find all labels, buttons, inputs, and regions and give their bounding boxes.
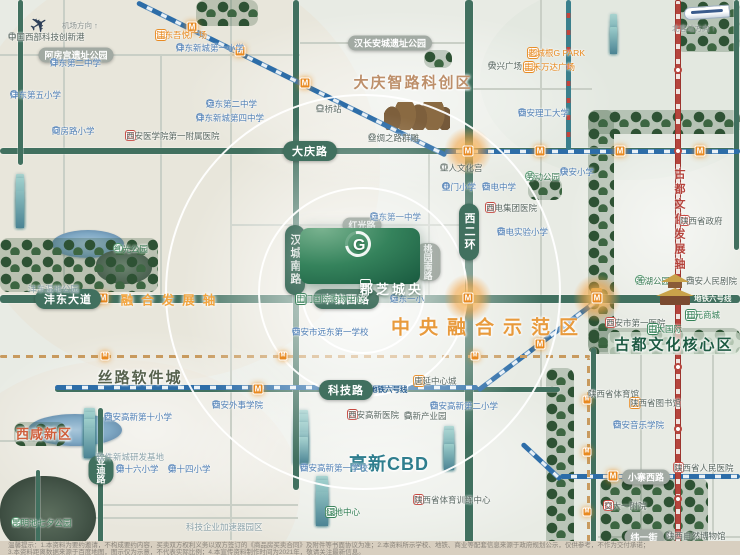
minor-road [470, 88, 592, 90]
road-pill: 西二环 [459, 204, 479, 261]
metro-station-icon: M [463, 146, 474, 157]
poi-label-text: 陕西省体育训练中心 [414, 495, 491, 506]
metro-station-icon: M [279, 352, 288, 361]
metro-station-icon: M [463, 293, 474, 304]
poi-label-text: 科技企业加速器园区 [186, 522, 263, 533]
poi-label-text: 开元商城 [686, 310, 720, 321]
poi-label-text: 第十六小学 [116, 464, 159, 475]
minor-road [100, 504, 298, 506]
major-road [18, 0, 23, 165]
poi-label-text: 丝绸之路群雕 [368, 133, 419, 144]
metro-station-icon: M [253, 384, 264, 395]
poi-label-text: 中大国际 [648, 324, 682, 335]
poi-label-text: 沣东吾悦广场 [156, 30, 207, 41]
metro-station-icon: M [592, 293, 603, 304]
minor-road [712, 352, 714, 538]
buildings-illustration [16, 174, 66, 228]
metro-station-icon: M [583, 448, 592, 457]
rail-station-icon [674, 363, 682, 371]
metro-line [587, 358, 590, 555]
poi-label-text: 软件新城研发基地 [96, 452, 164, 463]
metro-station-icon: M [535, 146, 546, 157]
poi-label-text: 西电集团医院 [486, 203, 537, 214]
poi-label-text: 沣东新城第四中学 [196, 113, 264, 124]
railstation-direction-label: 北客站方向 ↑ [672, 23, 715, 34]
minor-road [160, 55, 162, 296]
airport-direction-label: 机场方向 ↑ [62, 20, 98, 31]
poi-label-text: 沣东第二中学 [50, 58, 101, 69]
road-pill: 小寨西路 [622, 470, 670, 485]
project-name-text: 郡芝城央 [360, 279, 424, 298]
poi-label-text: 西安人民剧院 [686, 276, 737, 287]
disclaimer-line2: 3.本资料距离数据来源于百度地图，图示仅为示意，不代表实际比例；4.本宣传资料制… [8, 549, 732, 555]
poi-label-text: 西安高新第一学校 [300, 463, 368, 474]
poi-label-text: 远东第一中学 [370, 212, 421, 223]
metro-station-icon: M [535, 339, 546, 350]
poi-label-text: 三桥站 [316, 104, 342, 115]
poi-label-text: 土门小学 [442, 182, 476, 193]
disclaimer-line1: 温馨提示：1.本资料为要约邀请，不构成要约内容，买卖双方权利义务以双方签订的《商… [8, 542, 732, 549]
trees-illustration [424, 50, 452, 68]
major-road [734, 0, 739, 250]
metro-station-icon: M [101, 352, 110, 361]
poi-label-text: 西安医学院第一附属医院 [126, 131, 220, 142]
major-road [591, 348, 596, 555]
poi-label-text: 老城根G PARK [528, 48, 585, 59]
poi-label-text: 陕西省图书馆 [630, 398, 681, 409]
poi-label-text: 陕西省人民医院 [674, 463, 734, 474]
poi-label-text: 工人文化宫 [440, 163, 483, 174]
rail-station-icon [674, 66, 682, 74]
poi-label-text: 土门国际购物中心 [296, 294, 364, 305]
poi-label-text: 远东第二中学 [206, 99, 257, 110]
metro-station-icon: M [471, 352, 480, 361]
district-label: 大庆智路科创区 [353, 72, 472, 93]
poi-label-text: 交大一附院 [604, 501, 647, 512]
poi-label-text: 沣东湿地公园 [28, 284, 79, 295]
metro-station-icon: M [583, 508, 592, 517]
poi-label-text: 高新产业园 [404, 411, 447, 422]
poi-label-text: 西安高新医院 [348, 410, 399, 421]
metro-station-icon: M [615, 146, 626, 157]
rail-station-icon [674, 425, 682, 433]
poi-label-text: 大兴广场 [488, 61, 522, 72]
real-estate-location-map: MMMMMMMMMMMMMMMMMMM大庆智路科创区中央融合示范区古都文化核心区… [0, 0, 740, 555]
rail-station-icon [674, 147, 682, 155]
poi-label-text: 唐延中心城 [414, 376, 457, 387]
road-pill: 汉长安城遗址公园 [348, 36, 432, 51]
poi-label-text: 西安市远东第一学校 [292, 327, 369, 338]
road-pill: 大庆路 [283, 141, 337, 161]
logo-letter: G [353, 237, 365, 255]
poi-label-text: 西安理工大学 [518, 108, 569, 119]
metro-line-name-label: 地铁六号线 [694, 293, 732, 304]
poi-label-text: 阿房路小学 [52, 126, 95, 137]
poi-label-text: 丰禾万达广场 [524, 62, 575, 73]
poi-label-text: 劳动公园 [526, 172, 560, 183]
district-label: 丝路软件城 [97, 367, 182, 388]
rail-station-icon [674, 495, 682, 503]
poi-label-text: 西安音乐学院 [613, 420, 664, 431]
metro-line-name-label: 地铁六号线 [370, 384, 408, 395]
district-label: 西咸新区 [16, 424, 72, 443]
metro-line [566, 0, 571, 150]
poi-label-text: 绿地中心 [326, 507, 360, 518]
project-logo: G [345, 231, 375, 261]
poi-label-text: 庆安小学 [560, 167, 594, 178]
trees-illustration [546, 368, 574, 555]
poi-label-text: 沣东第五小学 [10, 90, 61, 101]
district-label: 古都文化核心区 [614, 334, 733, 355]
fusion-axis-label: 融合发展轴 [121, 290, 224, 309]
metro-station-icon: M [608, 471, 619, 482]
poi-label-text: 西电实验小学 [497, 227, 548, 238]
poi-label-text: 西安高新第十小学 [104, 412, 172, 423]
trees-illustration [196, 0, 258, 26]
poi-label-text: 昆明池七夕公园 [12, 518, 72, 529]
district-label: 中央融合示范区 [391, 313, 587, 340]
poi-label-text: 沣东新城第一小学 [176, 43, 244, 54]
road-pill: 科技路 [319, 380, 373, 400]
disclaimer: 温馨提示：1.本资料为要约邀请，不构成要约内容，买卖双方权利义务以双方签订的《商… [0, 541, 740, 555]
poi-label-text: 陕西省政府 [680, 216, 723, 227]
metro-station-icon: M [695, 146, 706, 157]
poi-label-text: 西安外事学院 [212, 400, 263, 411]
metro-station-icon: M [300, 78, 311, 89]
project-badge: G 郡芝城央 [300, 228, 420, 284]
poi-label-text: 第十四小学 [168, 464, 211, 475]
poi-label-text: 红光公园 [114, 244, 148, 255]
buildings-illustration [610, 14, 648, 54]
poi-label-text: 西电中学 [482, 182, 516, 193]
